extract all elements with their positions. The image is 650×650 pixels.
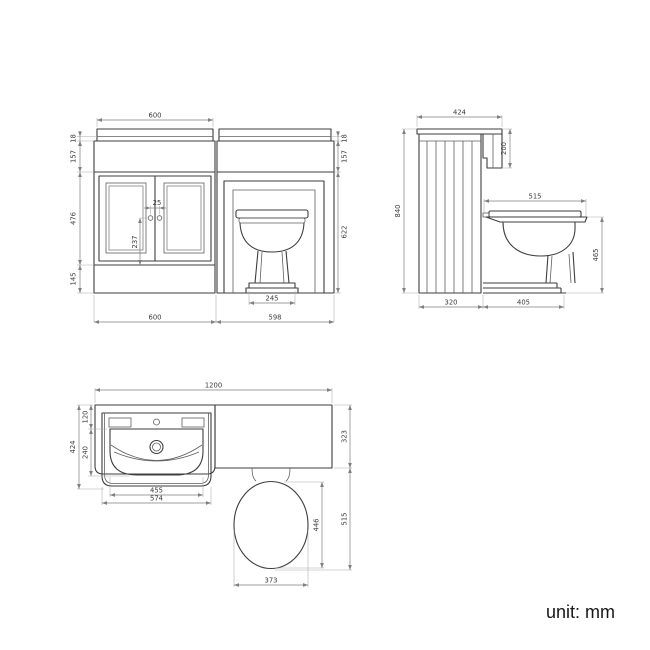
dim-plan-basin-inner-width: 455 bbox=[150, 487, 163, 495]
wc-unit-front bbox=[217, 129, 334, 293]
side-dimensions: 424 200 840 515 465 320 405 bbox=[394, 109, 604, 310]
dim-side-cabinet-depth: 320 bbox=[445, 299, 458, 307]
dim-plan-seat-length: 446 bbox=[313, 519, 321, 532]
dim-front-opening-height: 622 bbox=[341, 226, 349, 239]
dim-front-band-left: 157 bbox=[70, 150, 78, 163]
dim-front-top-width: 600 bbox=[149, 112, 162, 120]
dim-plan-wc-depth: 323 bbox=[341, 430, 349, 443]
toilet-side bbox=[483, 211, 587, 293]
dim-plan-total-width: 1200 bbox=[205, 382, 222, 390]
dim-front-handle-spacing: 25 bbox=[153, 199, 162, 207]
door-handle-right bbox=[157, 216, 162, 221]
dim-front-pan-base: 245 bbox=[266, 295, 279, 303]
front-elevation-view: 600 18 157 476 145 18 157 622 bbox=[70, 112, 349, 323]
dim-front-band-right: 157 bbox=[341, 150, 349, 163]
tap-hole bbox=[154, 419, 160, 425]
dim-front-wc-width: 598 bbox=[269, 314, 282, 322]
toilet-plan bbox=[234, 468, 308, 569]
door-handle-left bbox=[148, 216, 153, 221]
dim-plan-seat-width: 373 bbox=[265, 577, 278, 585]
side-elevation-view: 424 200 840 515 465 320 405 bbox=[394, 109, 604, 310]
technical-drawing-canvas: 600 18 157 476 145 18 157 622 bbox=[0, 0, 650, 650]
dim-plan-basin-width: 574 bbox=[150, 495, 163, 503]
plan-view: 1200 424 120 240 455 574 323 515 bbox=[69, 382, 352, 588]
dim-front-plinth: 145 bbox=[70, 273, 78, 286]
dim-plan-pan-projection: 515 bbox=[341, 513, 349, 526]
toilet-front bbox=[236, 210, 308, 293]
dim-plan-basin-back: 120 bbox=[82, 411, 90, 424]
dim-front-vanity-width: 600 bbox=[149, 314, 162, 322]
vanity-plan bbox=[95, 405, 215, 486]
dim-side-seat-height: 465 bbox=[592, 249, 600, 262]
dim-side-total-height: 840 bbox=[394, 205, 402, 218]
plan-dimensions: 1200 424 120 240 455 574 323 515 bbox=[69, 382, 352, 588]
wc-plan bbox=[215, 405, 332, 468]
dim-side-panel-height: 200 bbox=[500, 142, 508, 155]
dim-front-worktop-left: 18 bbox=[70, 134, 78, 143]
dim-side-pan-projection: 405 bbox=[517, 299, 530, 307]
front-dimensions: 600 18 157 476 145 18 157 622 bbox=[70, 112, 349, 323]
waste-hole bbox=[150, 441, 163, 454]
dim-plan-basin-bowl: 240 bbox=[82, 446, 90, 459]
dim-front-handle-drop: 237 bbox=[131, 236, 139, 249]
dim-front-door-height: 476 bbox=[70, 212, 78, 225]
dim-side-seat-depth: 515 bbox=[529, 193, 542, 201]
technical-drawing-page: 600 18 157 476 145 18 157 622 bbox=[0, 0, 650, 650]
dim-front-worktop-right: 18 bbox=[341, 134, 349, 143]
dim-plan-vanity-depth: 424 bbox=[69, 441, 77, 454]
vanity-unit-front bbox=[94, 129, 215, 293]
dim-side-worktop-depth: 424 bbox=[453, 109, 466, 117]
vanity-doors bbox=[99, 176, 211, 261]
unit-label: unit: mm bbox=[546, 602, 646, 623]
